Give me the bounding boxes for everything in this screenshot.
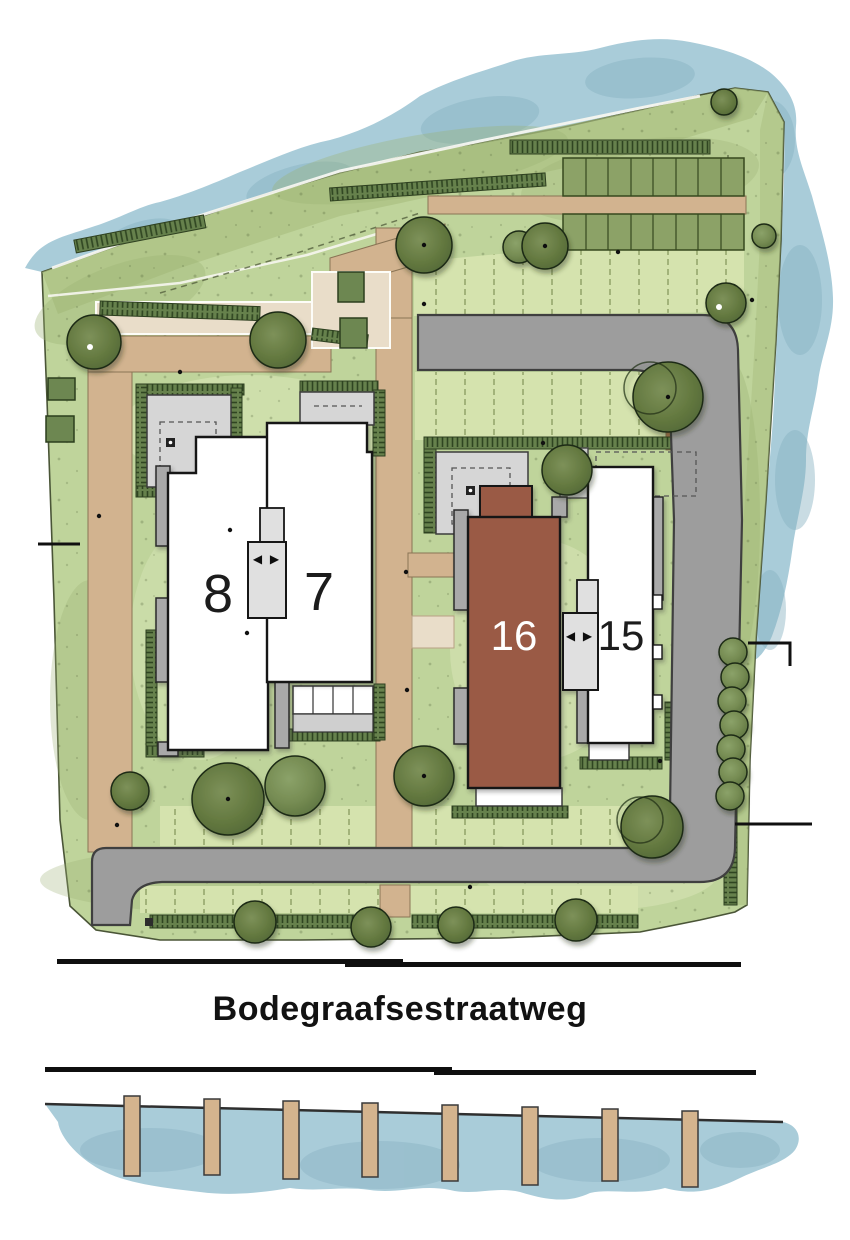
hedge xyxy=(424,449,436,533)
tree xyxy=(351,907,391,947)
pier xyxy=(124,1096,140,1176)
tree xyxy=(542,445,592,495)
pier xyxy=(442,1105,458,1181)
hedge xyxy=(452,806,568,818)
site-plan: 8 7 ◀ ▶ 16 15 ◀ ▶ xyxy=(0,0,850,1240)
tree xyxy=(67,315,121,369)
hedge xyxy=(300,381,378,392)
tree xyxy=(752,224,776,248)
entrance-arrows-icon: ◀ ▶ xyxy=(566,629,594,643)
path-landing xyxy=(412,616,454,648)
tree xyxy=(555,899,597,941)
entrance-arrows-icon: ◀ ▶ xyxy=(253,552,281,566)
hedge xyxy=(374,684,385,740)
planter xyxy=(46,416,74,442)
building-7-label: 7 xyxy=(304,562,334,622)
pier xyxy=(682,1111,698,1187)
site-plan-canvas: 8 7 ◀ ▶ 16 15 ◀ ▶ xyxy=(0,0,850,1240)
building-16[interactable]: 16 xyxy=(468,486,560,788)
tree xyxy=(250,312,306,368)
terrace xyxy=(300,392,374,425)
tree xyxy=(111,772,149,810)
street-bodegraafsestraatweg: Bodegraafsestraatweg xyxy=(45,959,756,1075)
building-15-label: 15 xyxy=(598,612,645,659)
tree xyxy=(719,638,747,666)
water-south xyxy=(45,1096,799,1200)
planter xyxy=(48,378,75,400)
tree xyxy=(234,901,276,943)
pier xyxy=(522,1107,538,1185)
tree xyxy=(706,283,746,323)
hedge xyxy=(136,384,147,496)
building-15[interactable]: 15 xyxy=(588,467,662,743)
planter xyxy=(338,272,364,302)
hedge xyxy=(510,140,710,154)
path-parking xyxy=(428,196,746,214)
tree xyxy=(265,756,325,816)
tree xyxy=(711,89,737,115)
building-16-label: 16 xyxy=(491,612,538,659)
hedge xyxy=(136,384,244,395)
street-name-label: Bodegraafsestraatweg xyxy=(213,990,588,1028)
planter xyxy=(340,318,367,348)
terrace xyxy=(589,743,629,760)
terrace xyxy=(476,788,562,806)
hedge xyxy=(373,390,385,456)
pier xyxy=(283,1101,299,1179)
pier xyxy=(204,1099,220,1175)
tree xyxy=(621,796,683,858)
hedge xyxy=(424,437,674,449)
tree xyxy=(438,907,474,943)
tree xyxy=(716,782,744,810)
building-8-label: 8 xyxy=(203,564,233,624)
pier xyxy=(362,1103,378,1177)
pier xyxy=(602,1109,618,1181)
